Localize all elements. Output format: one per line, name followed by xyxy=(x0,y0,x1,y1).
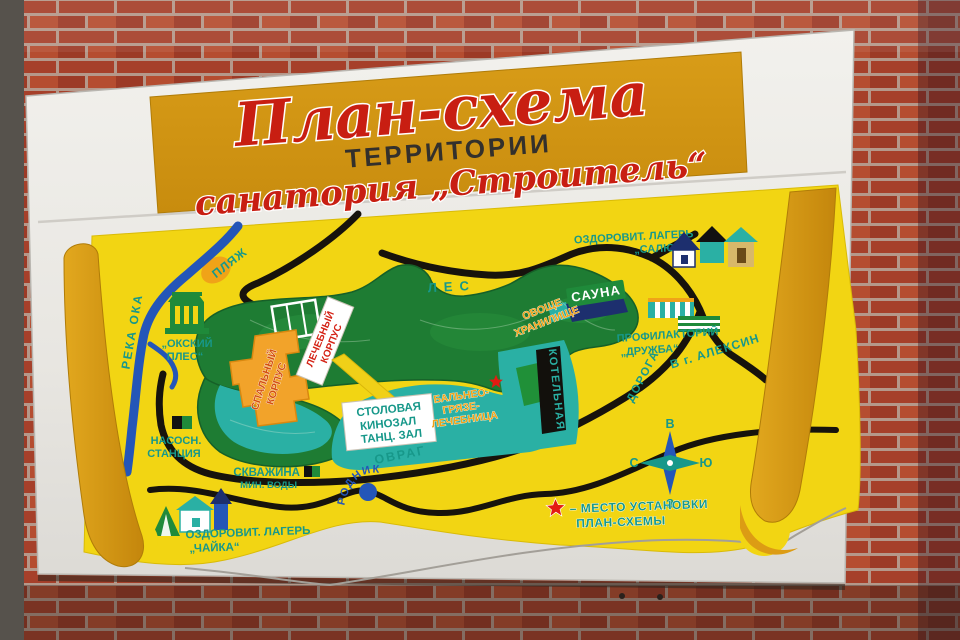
pump-station-icon xyxy=(172,416,192,429)
oksky-ples-line1: „ОКСКИЙ xyxy=(161,337,212,350)
compass-top: В xyxy=(665,417,674,431)
well-line2: МИН. ВОДЫ xyxy=(240,480,297,491)
well-icon xyxy=(304,466,320,477)
oksky-ples-line2: ПЛЕС“ xyxy=(167,351,203,363)
forest-label: ЛЕС xyxy=(427,278,476,296)
compass-left: С xyxy=(629,456,638,470)
photo-of-sanatorium-plan-sign: План-схема ТЕРРИТОРИИ санатория „Строите… xyxy=(0,0,960,640)
well-line1: СКВАЖИНА xyxy=(233,467,300,479)
camp-chayka-line2: „ЧАЙКА“ xyxy=(189,540,240,555)
pump-station-line1: НАСОСН. xyxy=(151,435,202,447)
pump-station-line2: СТАНЦИЯ xyxy=(147,448,201,460)
brick-wall-corner-shadow xyxy=(918,0,960,640)
wall-edge-strip xyxy=(0,0,24,640)
brick-wall-bottom-shadow xyxy=(0,585,960,640)
mount-hole xyxy=(619,593,625,599)
sign-scene: План-схема ТЕРРИТОРИИ санатория „Строите… xyxy=(0,0,960,640)
spring-dot xyxy=(359,483,377,501)
mount-hole xyxy=(657,594,663,600)
compass-right: Ю xyxy=(700,456,713,470)
canteen-banner: СТОЛОВАЯ КИНОЗАЛ ТАНЦ. ЗАЛ xyxy=(342,394,437,451)
